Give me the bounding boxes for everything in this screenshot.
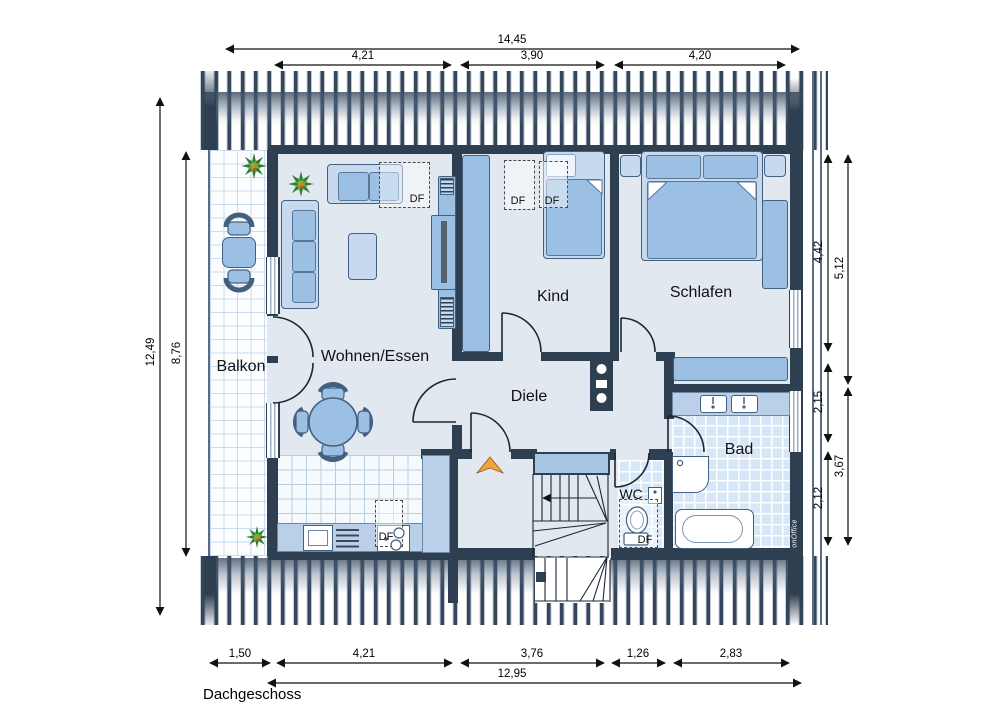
dim-bottom-total: 12,95 — [498, 668, 527, 680]
wall-wc-north-a — [610, 449, 616, 460]
nightstand-right — [764, 155, 786, 177]
room-label-wc: WC — [619, 486, 642, 502]
df-label-child-1: DF — [511, 195, 526, 207]
room-label-bedroom: Schlafen — [670, 284, 732, 302]
balcony-window-upper — [266, 257, 280, 314]
dim-left-inner: 8,76 — [171, 342, 183, 364]
balcony-door-opening-lower — [267, 363, 278, 403]
wall-bottom-east — [611, 548, 803, 560]
roof-verge-line-outer — [812, 71, 814, 625]
dim-bottom-4: 1,26 — [627, 648, 649, 660]
dim-right-1: 4,42 — [813, 241, 825, 263]
bath-window-right — [789, 391, 803, 452]
washbasin-right — [731, 395, 758, 413]
floor-plan: Wohnen/Essen Balkon Kind Schlafen Diele … — [0, 0, 1000, 706]
df-label-wc: DF — [638, 534, 653, 546]
coffee-table — [348, 233, 377, 280]
roof-gable-bar-top-left — [204, 71, 216, 150]
drying-rack — [336, 529, 359, 548]
dim-right-5: 2,12 — [813, 487, 825, 509]
room-label-hall: Diele — [511, 388, 547, 406]
bedroom-wardrobe — [762, 200, 788, 289]
bed-duvet — [647, 181, 757, 259]
stove-inner — [308, 530, 328, 546]
bed-pillow-right — [703, 155, 758, 179]
sofa-large-cushion — [292, 272, 316, 303]
dim-bottom-3: 3,76 — [521, 648, 543, 660]
df-label-living: DF — [410, 193, 425, 205]
speaker-box — [440, 297, 454, 327]
child-wardrobe — [462, 155, 490, 352]
balcony-edge-line — [208, 150, 210, 556]
dim-bottom-1: 1,50 — [229, 648, 251, 660]
dim-bottom-5: 2,83 — [720, 648, 742, 660]
washbasin-left — [700, 395, 727, 413]
watermark: onOffice — [792, 512, 799, 556]
wall-child-bedroom — [610, 145, 619, 361]
sofa-large-cushion — [292, 241, 316, 272]
dim-right-4: 3,67 — [834, 455, 846, 477]
dim-left-outer: 12,49 — [145, 338, 157, 367]
sofa-large-cushion — [292, 210, 316, 241]
shower — [672, 456, 709, 493]
wall-wc-north-b — [649, 449, 672, 460]
page-title: Dachgeschoss — [203, 686, 301, 703]
df-label-child-2: DF — [545, 195, 560, 207]
wall-right — [790, 145, 803, 560]
room-label-balcony: Balkon — [217, 358, 266, 376]
dim-top-3: 4,20 — [689, 50, 711, 62]
wall-child-south-a — [462, 352, 503, 361]
roof-corner-post-bottom-right — [788, 556, 803, 625]
dim-top-2: 3,90 — [521, 50, 543, 62]
dim-top-total: 14,45 — [498, 34, 527, 46]
kitchen-counter-right — [422, 455, 450, 553]
dim-bottom-2: 4,21 — [353, 648, 375, 660]
tv-screen — [441, 221, 447, 283]
bed-pillow-left — [646, 155, 701, 179]
room-label-bath: Bad — [725, 441, 753, 459]
bedroom-window-right — [789, 290, 803, 348]
sofa-small-cushion — [338, 172, 369, 201]
roof-gable-bar-bottom-left — [204, 556, 216, 625]
stair-handrail — [533, 452, 610, 475]
balcony-floor — [210, 150, 268, 556]
roof-verge-line-inner — [820, 71, 822, 625]
dim-top-1: 4,21 — [352, 50, 374, 62]
stair-lower-background — [535, 557, 610, 603]
balcony-window-lower — [266, 403, 280, 458]
chimney — [590, 357, 613, 411]
df-label-kitchen: DF — [379, 531, 394, 543]
balcony-table — [222, 237, 256, 268]
dim-right-2: 5,12 — [834, 257, 846, 279]
room-label-living: Wohnen/Essen — [321, 348, 429, 366]
nightstand-left — [620, 155, 641, 177]
room-label-child: Kind — [537, 288, 569, 306]
roof-wall-shadow-top — [204, 92, 803, 126]
roof-corner-post-top-right — [788, 78, 803, 150]
balcony-door-opening-upper — [267, 316, 278, 356]
speaker-box — [440, 178, 454, 195]
bedroom-dresser — [673, 357, 788, 381]
bathtub-inner — [682, 515, 743, 543]
dim-right-3: 2,15 — [813, 391, 825, 413]
roof-wall-shadow-bottom — [204, 558, 803, 594]
